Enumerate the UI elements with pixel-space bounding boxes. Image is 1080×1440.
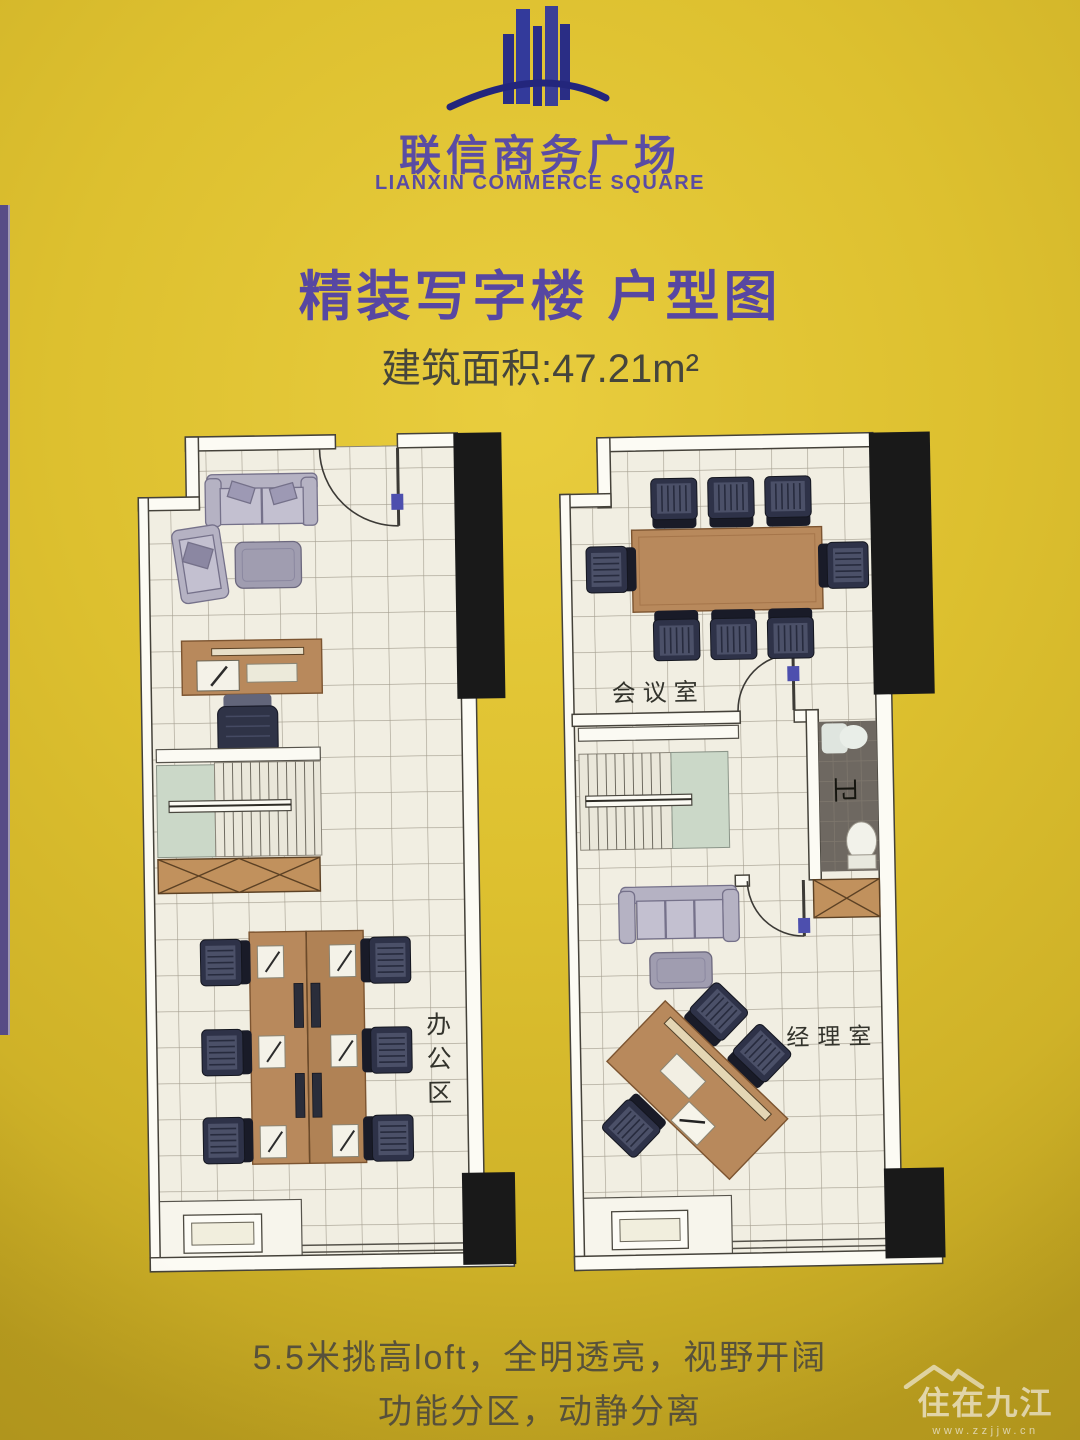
wall-column-top-right — [869, 431, 935, 694]
floor-plan-upper-drawing — [555, 429, 948, 1298]
shelf-band — [156, 747, 320, 763]
void-hatch — [813, 879, 880, 918]
coffee-table — [235, 541, 302, 588]
room-label-bathroom: 卫 — [828, 776, 865, 803]
flyer-page: 联信商务广场 LIANXIN COMMERCE SQUARE 精装写字楼 户型图… — [0, 0, 1080, 1440]
reception-desk — [181, 639, 322, 695]
watermark-site-name: 住在九江 — [898, 1378, 1073, 1424]
wall-column-top-right — [453, 432, 505, 699]
office-chair — [217, 694, 278, 755]
shelf-band — [578, 725, 738, 741]
brand-name-en: LIANXIN COMMERCE SQUARE — [0, 172, 1080, 195]
watermark-site-url: www.zzjjw.cn — [898, 1425, 1073, 1437]
staircase — [156, 761, 321, 858]
void-hatch — [158, 857, 321, 894]
wall-column-bottom-right — [462, 1172, 516, 1265]
coffee-table — [650, 952, 713, 989]
staircase — [579, 751, 730, 850]
floor-plan-lower: 办公区 — [133, 430, 518, 1296]
floor-plan-lower-drawing — [133, 430, 518, 1296]
building-logo-icon — [420, 4, 660, 119]
conference-table — [632, 527, 824, 613]
room-label-meeting: 会议室 — [611, 672, 705, 709]
sofa — [205, 473, 318, 527]
room-label-office: 办公区 — [418, 1011, 456, 1114]
floor-plan-upper: 会议室 卫 经理室 — [555, 429, 948, 1298]
room-label-manager: 经理室 — [786, 1017, 880, 1053]
page-title: 精装写字楼 户型图 — [0, 252, 1080, 331]
wall-column-bottom-right — [884, 1167, 946, 1258]
watermark: 住在九江 www.zzjjw.cn — [898, 1378, 1073, 1437]
office-work-table — [249, 930, 367, 1164]
area-text: 建筑面积:47.21m² — [0, 336, 1080, 394]
